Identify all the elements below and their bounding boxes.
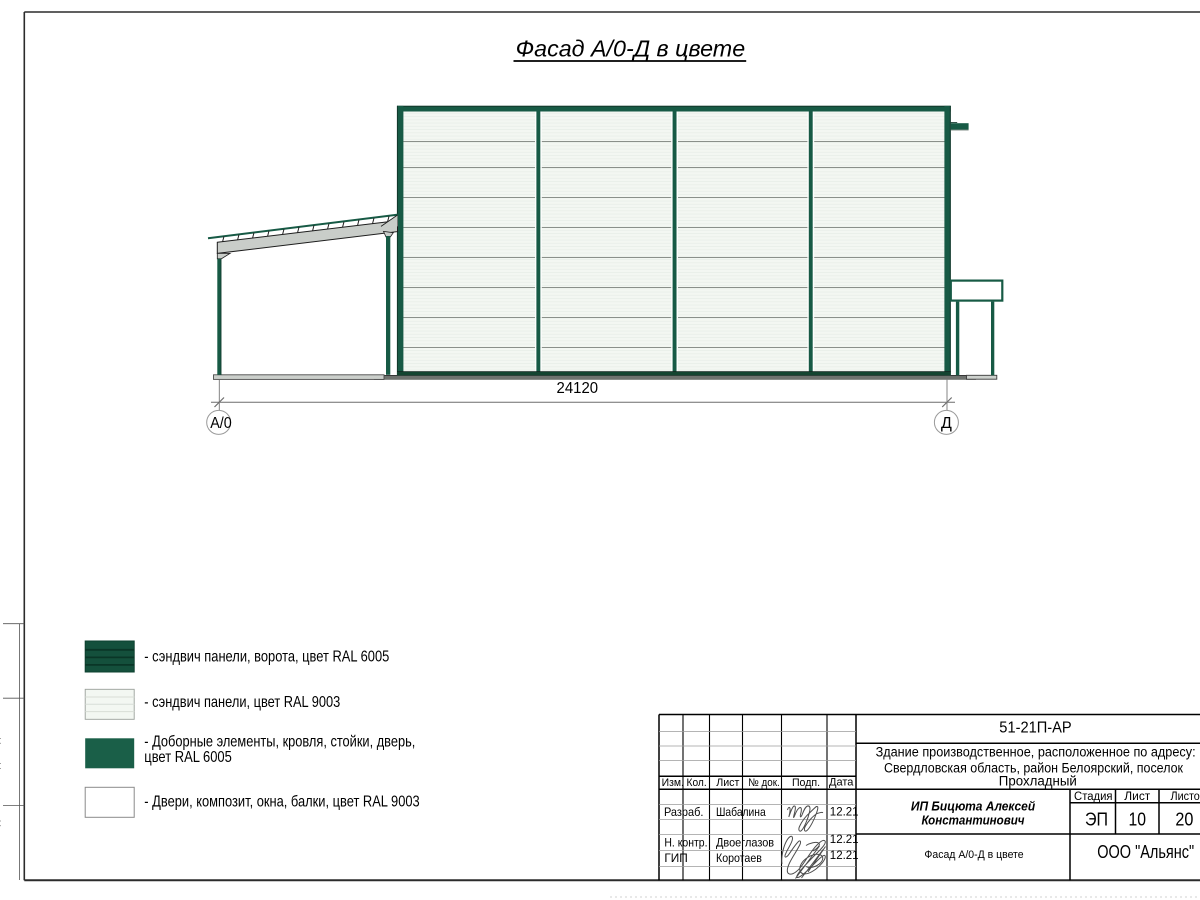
svg-text:Лист: Лист bbox=[1124, 791, 1151, 803]
svg-text:Подп. и дата: Подп. и дата bbox=[0, 722, 2, 781]
svg-text:№ док.: № док. bbox=[748, 777, 780, 789]
svg-text:Двоеглазов: Двоеглазов bbox=[716, 836, 774, 850]
svg-text:Подп.: Подп. bbox=[792, 777, 820, 789]
svg-text:Стадия: Стадия bbox=[1074, 791, 1113, 803]
svg-text:Д: Д bbox=[941, 415, 952, 432]
svg-text:Взам. инв. №: Взам. инв. № bbox=[0, 630, 2, 692]
svg-text:Инв. № подл.: Инв. № подл. bbox=[0, 812, 2, 874]
svg-text:Н. контр.: Н. контр. bbox=[664, 836, 707, 850]
svg-text:- Двери, композит, окна, балки: - Двери, композит, окна, балки, цвет RAL… bbox=[144, 794, 419, 811]
svg-text:цвет RAL 6005: цвет RAL 6005 bbox=[144, 749, 232, 766]
svg-text:Лист: Лист bbox=[716, 777, 739, 789]
svg-text:ГИП: ГИП bbox=[664, 851, 687, 865]
svg-text:А/0: А/0 bbox=[210, 415, 232, 432]
svg-text:Изм.: Изм. bbox=[662, 777, 684, 789]
svg-text:Константинович: Константинович bbox=[922, 812, 1025, 827]
svg-text:51-21П-АР: 51-21П-АР bbox=[999, 720, 1071, 737]
svg-text:Кол.: Кол. bbox=[687, 777, 707, 789]
svg-text:ЭП: ЭП bbox=[1085, 810, 1108, 830]
svg-text:Разраб.: Разраб. bbox=[664, 805, 703, 819]
svg-text:20: 20 bbox=[1175, 810, 1193, 830]
svg-text:ООО "Альянс": ООО "Альянс" bbox=[1097, 842, 1194, 862]
svg-text:Дата: Дата bbox=[829, 776, 854, 788]
svg-text:Прохладный: Прохладный bbox=[999, 774, 1077, 789]
svg-text:Коротаев: Коротаев bbox=[716, 851, 762, 865]
svg-text:Здание производственное, распо: Здание производственное, расположенное п… bbox=[876, 745, 1196, 760]
svg-text:12.21: 12.21 bbox=[830, 834, 859, 846]
svg-text:ИП Бицюта Алексей: ИП Бицюта Алексей bbox=[911, 798, 1035, 813]
svg-text:10: 10 bbox=[1129, 810, 1147, 830]
svg-text:12.21: 12.21 bbox=[830, 850, 859, 862]
svg-text:12.21: 12.21 bbox=[830, 807, 859, 819]
svg-text:Шабалина: Шабалина bbox=[716, 805, 766, 819]
svg-text:- сэндвич панели, ворота, цвет: - сэндвич панели, ворота, цвет RAL 6005 bbox=[144, 649, 389, 666]
svg-text:- сэндвич панели, цвет RAL 900: - сэндвич панели, цвет RAL 9003 bbox=[144, 694, 340, 711]
svg-text:24120: 24120 bbox=[557, 380, 599, 397]
svg-text:Листов: Листов bbox=[1171, 791, 1200, 803]
svg-text:Фасад А/0-Д в цвете: Фасад А/0-Д в цвете bbox=[924, 849, 1023, 861]
svg-text:Фасад А/0-Д в цвете: Фасад А/0-Д в цвете bbox=[516, 36, 746, 62]
